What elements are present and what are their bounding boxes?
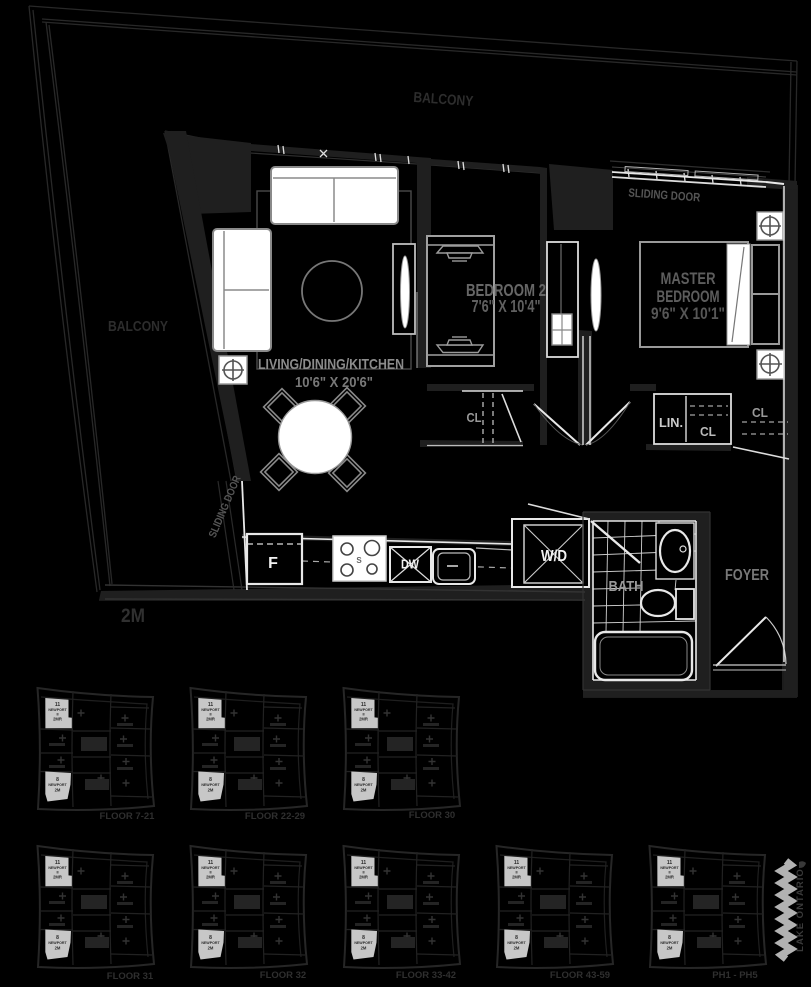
svg-text:10'6" X 20'6": 10'6" X 20'6" <box>295 374 373 391</box>
svg-text:F: F <box>268 555 278 572</box>
svg-text:CL: CL <box>700 425 716 439</box>
svg-text:W/D: W/D <box>541 548 567 565</box>
svg-text:LIVING/DINING/KITCHEN: LIVING/DINING/KITCHEN <box>258 356 404 373</box>
svg-text:BATH: BATH <box>609 578 644 595</box>
svg-text:FLOOR 30: FLOOR 30 <box>409 810 455 821</box>
svg-text:MASTER: MASTER <box>661 270 716 288</box>
svg-text:9'6" X 10'1": 9'6" X 10'1" <box>651 305 725 323</box>
svg-text:BEDROOM: BEDROOM <box>657 288 720 306</box>
svg-text:FOYER: FOYER <box>725 567 769 584</box>
svg-text:FLOOR 32: FLOOR 32 <box>260 970 306 981</box>
svg-text:FLOOR 33-42: FLOOR 33-42 <box>396 970 456 981</box>
svg-text:FLOOR 43-59: FLOOR 43-59 <box>550 970 610 981</box>
svg-text:PH1 - PH5: PH1 - PH5 <box>712 970 758 981</box>
svg-text:2M: 2M <box>121 606 145 627</box>
svg-text:CL: CL <box>467 411 482 425</box>
svg-text:S: S <box>356 556 362 565</box>
svg-text:BALCONY: BALCONY <box>108 319 168 335</box>
svg-text:LAKE ONTARIO: LAKE ONTARIO <box>795 868 806 952</box>
svg-text:FLOOR 31: FLOOR 31 <box>107 971 154 982</box>
svg-text:FLOOR 7-21: FLOOR 7-21 <box>100 811 156 822</box>
svg-text:DW: DW <box>401 557 420 572</box>
svg-text:FLOOR 22-29: FLOOR 22-29 <box>245 811 305 822</box>
svg-text:7'6" X 10'4": 7'6" X 10'4" <box>472 296 541 316</box>
svg-text:LIN.: LIN. <box>659 416 683 430</box>
svg-text:CL: CL <box>752 405 768 420</box>
